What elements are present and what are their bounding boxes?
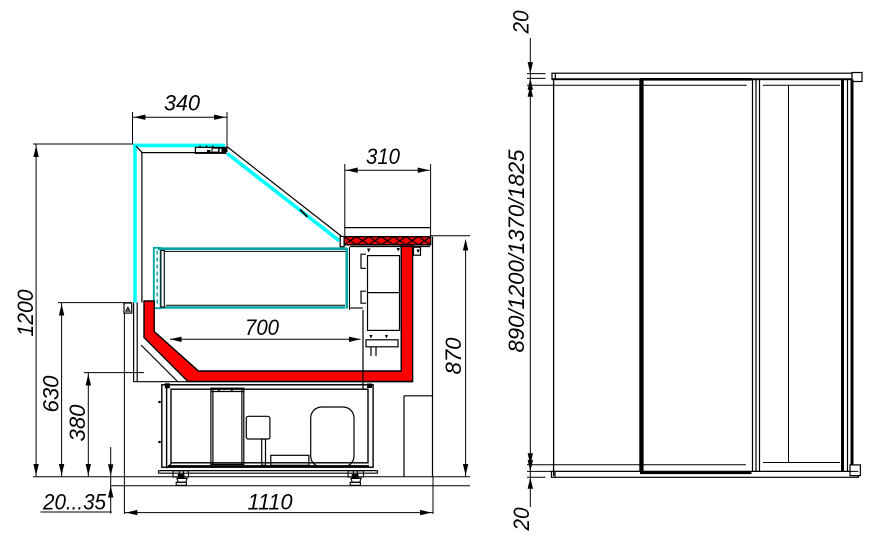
svg-text:340: 340 [164, 91, 200, 116]
svg-text:890/1200/1370/1825: 890/1200/1370/1825 [504, 149, 529, 352]
svg-text:1200: 1200 [13, 289, 38, 336]
svg-text:20: 20 [509, 10, 534, 34]
svg-text:870: 870 [441, 337, 466, 374]
svg-text:700: 700 [245, 315, 279, 340]
svg-text:20...35: 20...35 [42, 490, 106, 515]
svg-text:630: 630 [39, 375, 64, 412]
svg-text:310: 310 [366, 144, 400, 169]
svg-text:380: 380 [65, 404, 90, 441]
svg-text:20: 20 [509, 507, 534, 531]
svg-text:1110: 1110 [248, 490, 293, 515]
